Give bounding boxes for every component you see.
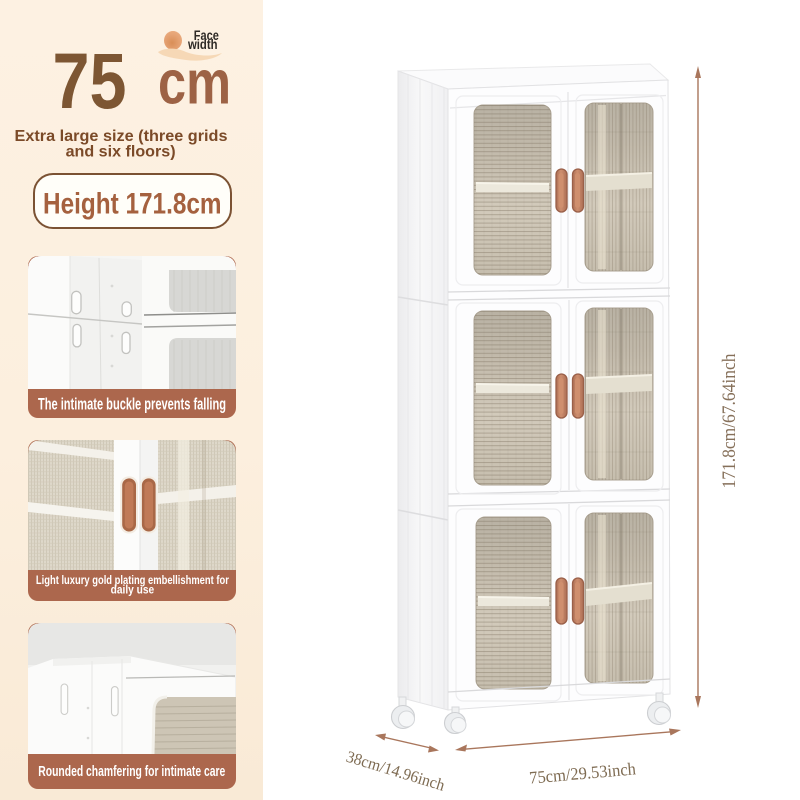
- svg-text:38cm/14.96inch: 38cm/14.96inch: [344, 747, 448, 795]
- svg-text:171.8cm/67.64inch: 171.8cm/67.64inch: [719, 353, 740, 488]
- svg-text:75cm/29.53inch: 75cm/29.53inch: [528, 758, 637, 787]
